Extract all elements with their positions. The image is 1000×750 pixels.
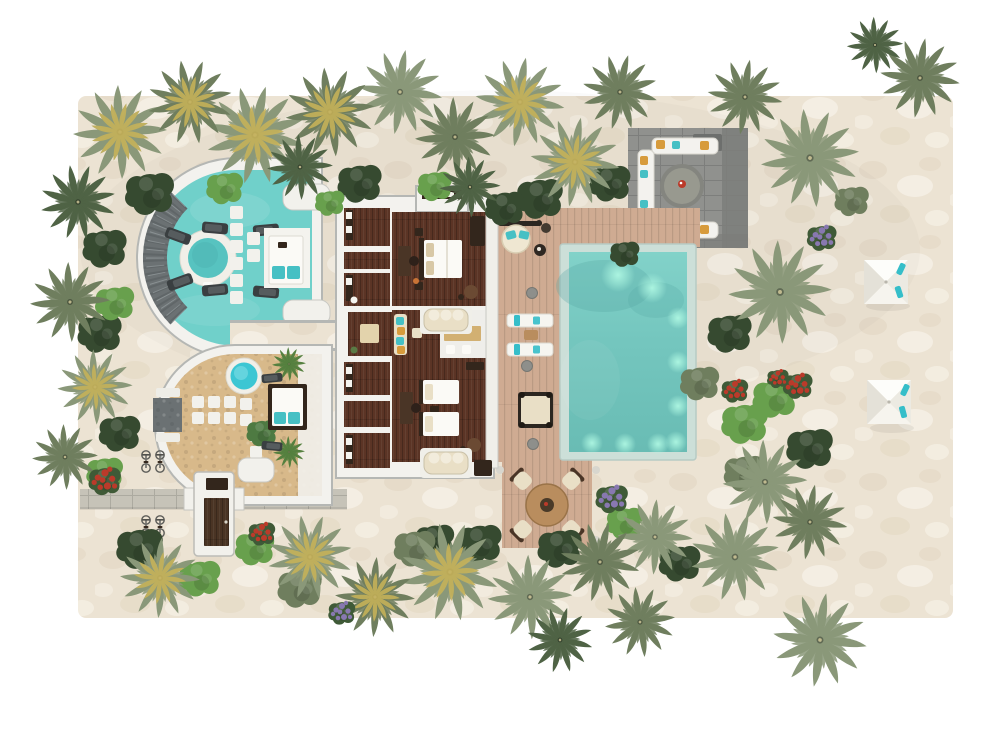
lower-suite-bed [268,384,307,430]
door-mat [474,460,492,476]
pouf-2 [522,361,533,372]
terrace-sofa-north [420,306,472,334]
armchair [464,285,478,299]
pod-1 [344,208,390,246]
sun-lounger-1 [507,314,553,327]
pod-4 [344,433,390,468]
main-pool [556,244,696,460]
upper-suite-bed [264,228,310,288]
villa-siteplan-rendering [0,0,1000,750]
stool-1 [541,223,551,233]
sun-lounger-2 [507,343,553,356]
beach-umbrella-north [864,260,910,311]
fire-pit-table [660,164,704,208]
pouf-1 [527,288,538,299]
siteplan-canvas [0,0,1000,750]
center-villa-block [336,186,498,478]
lounger-table [524,330,538,340]
lower-round-suite [153,345,332,505]
dressing-room [348,312,392,356]
plunge-pool [226,358,262,394]
terrace-sofa-south [420,448,472,478]
upper-bedroom [392,212,488,306]
lower-suite-entry-south [238,458,274,482]
pouf-3 [528,439,539,450]
pod-3 [344,362,390,395]
east-walkway [486,212,498,468]
daybed [518,392,553,428]
credenza [470,216,485,246]
pod-2 [344,273,390,306]
lower-bedroom [392,358,488,462]
